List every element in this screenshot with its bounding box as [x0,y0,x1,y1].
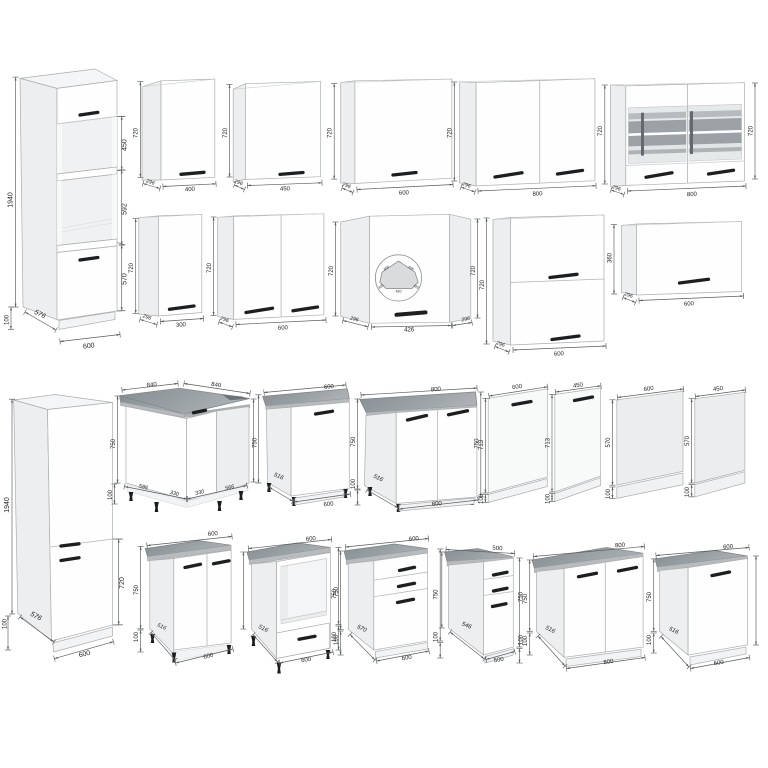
svg-text:713: 713 [479,439,485,450]
svg-text:600: 600 [723,544,734,551]
svg-text:720: 720 [134,127,140,138]
svg-text:720: 720 [223,127,229,138]
svg-text:720: 720 [480,279,486,290]
svg-text:600: 600 [324,384,335,391]
svg-text:720: 720 [328,127,334,138]
svg-text:600: 600 [306,536,317,543]
svg-text:100: 100 [108,489,114,500]
svg-text:600: 600 [399,190,410,197]
svg-text:300: 300 [176,322,187,329]
svg-text:750: 750 [434,589,440,600]
svg-text:450: 450 [122,139,129,151]
svg-text:600: 600 [409,536,420,543]
svg-text:600: 600 [83,342,96,350]
svg-text:600: 600 [278,325,289,332]
svg-text:100: 100 [351,478,357,489]
svg-text:750: 750 [647,591,653,602]
svg-text:100: 100 [479,493,485,504]
svg-text:400: 400 [185,187,196,194]
svg-text:100: 100 [5,314,11,325]
svg-text:800: 800 [432,501,443,508]
svg-text:100: 100 [606,488,612,499]
svg-text:800: 800 [687,192,698,199]
svg-text:750: 750 [134,584,140,595]
svg-text:720: 720 [448,127,454,138]
svg-text:500: 500 [492,546,503,553]
svg-text:100: 100 [546,493,552,504]
svg-text:750: 750 [351,436,357,447]
svg-text:426: 426 [404,328,415,334]
svg-text:720: 720 [471,265,477,276]
svg-text:100: 100 [3,618,9,629]
svg-text:570: 570 [122,273,129,285]
svg-text:750: 750 [334,586,340,597]
svg-text:1940: 1940 [8,192,15,208]
svg-text:100: 100 [434,631,440,642]
svg-text:600: 600 [554,351,565,358]
svg-text:360: 360 [608,252,614,263]
svg-text:720: 720 [119,577,126,589]
svg-text:750: 750 [523,593,529,604]
svg-text:420: 420 [396,290,402,294]
svg-text:720: 720 [129,262,135,273]
svg-text:800: 800 [615,543,626,550]
svg-text:100: 100 [334,634,340,645]
svg-text:450: 450 [280,186,291,192]
svg-text:750: 750 [111,438,117,449]
svg-text:800: 800 [532,191,543,198]
svg-text:720: 720 [749,125,755,136]
svg-text:600: 600 [323,501,334,508]
svg-text:750: 750 [253,437,259,448]
svg-text:720: 720 [329,265,335,276]
svg-text:600: 600 [684,301,695,308]
svg-text:720: 720 [207,262,213,273]
svg-text:592: 592 [122,203,129,215]
svg-text:100: 100 [685,486,691,497]
svg-text:570: 570 [606,437,612,448]
svg-text:100: 100 [134,631,140,642]
svg-text:713: 713 [546,437,552,448]
svg-text:720: 720 [598,125,604,136]
svg-text:100: 100 [523,635,529,646]
svg-text:1940: 1940 [4,497,11,513]
svg-text:100: 100 [647,634,653,645]
svg-text:600: 600 [208,531,219,538]
svg-text:800: 800 [431,387,442,394]
svg-text:570: 570 [685,435,691,446]
